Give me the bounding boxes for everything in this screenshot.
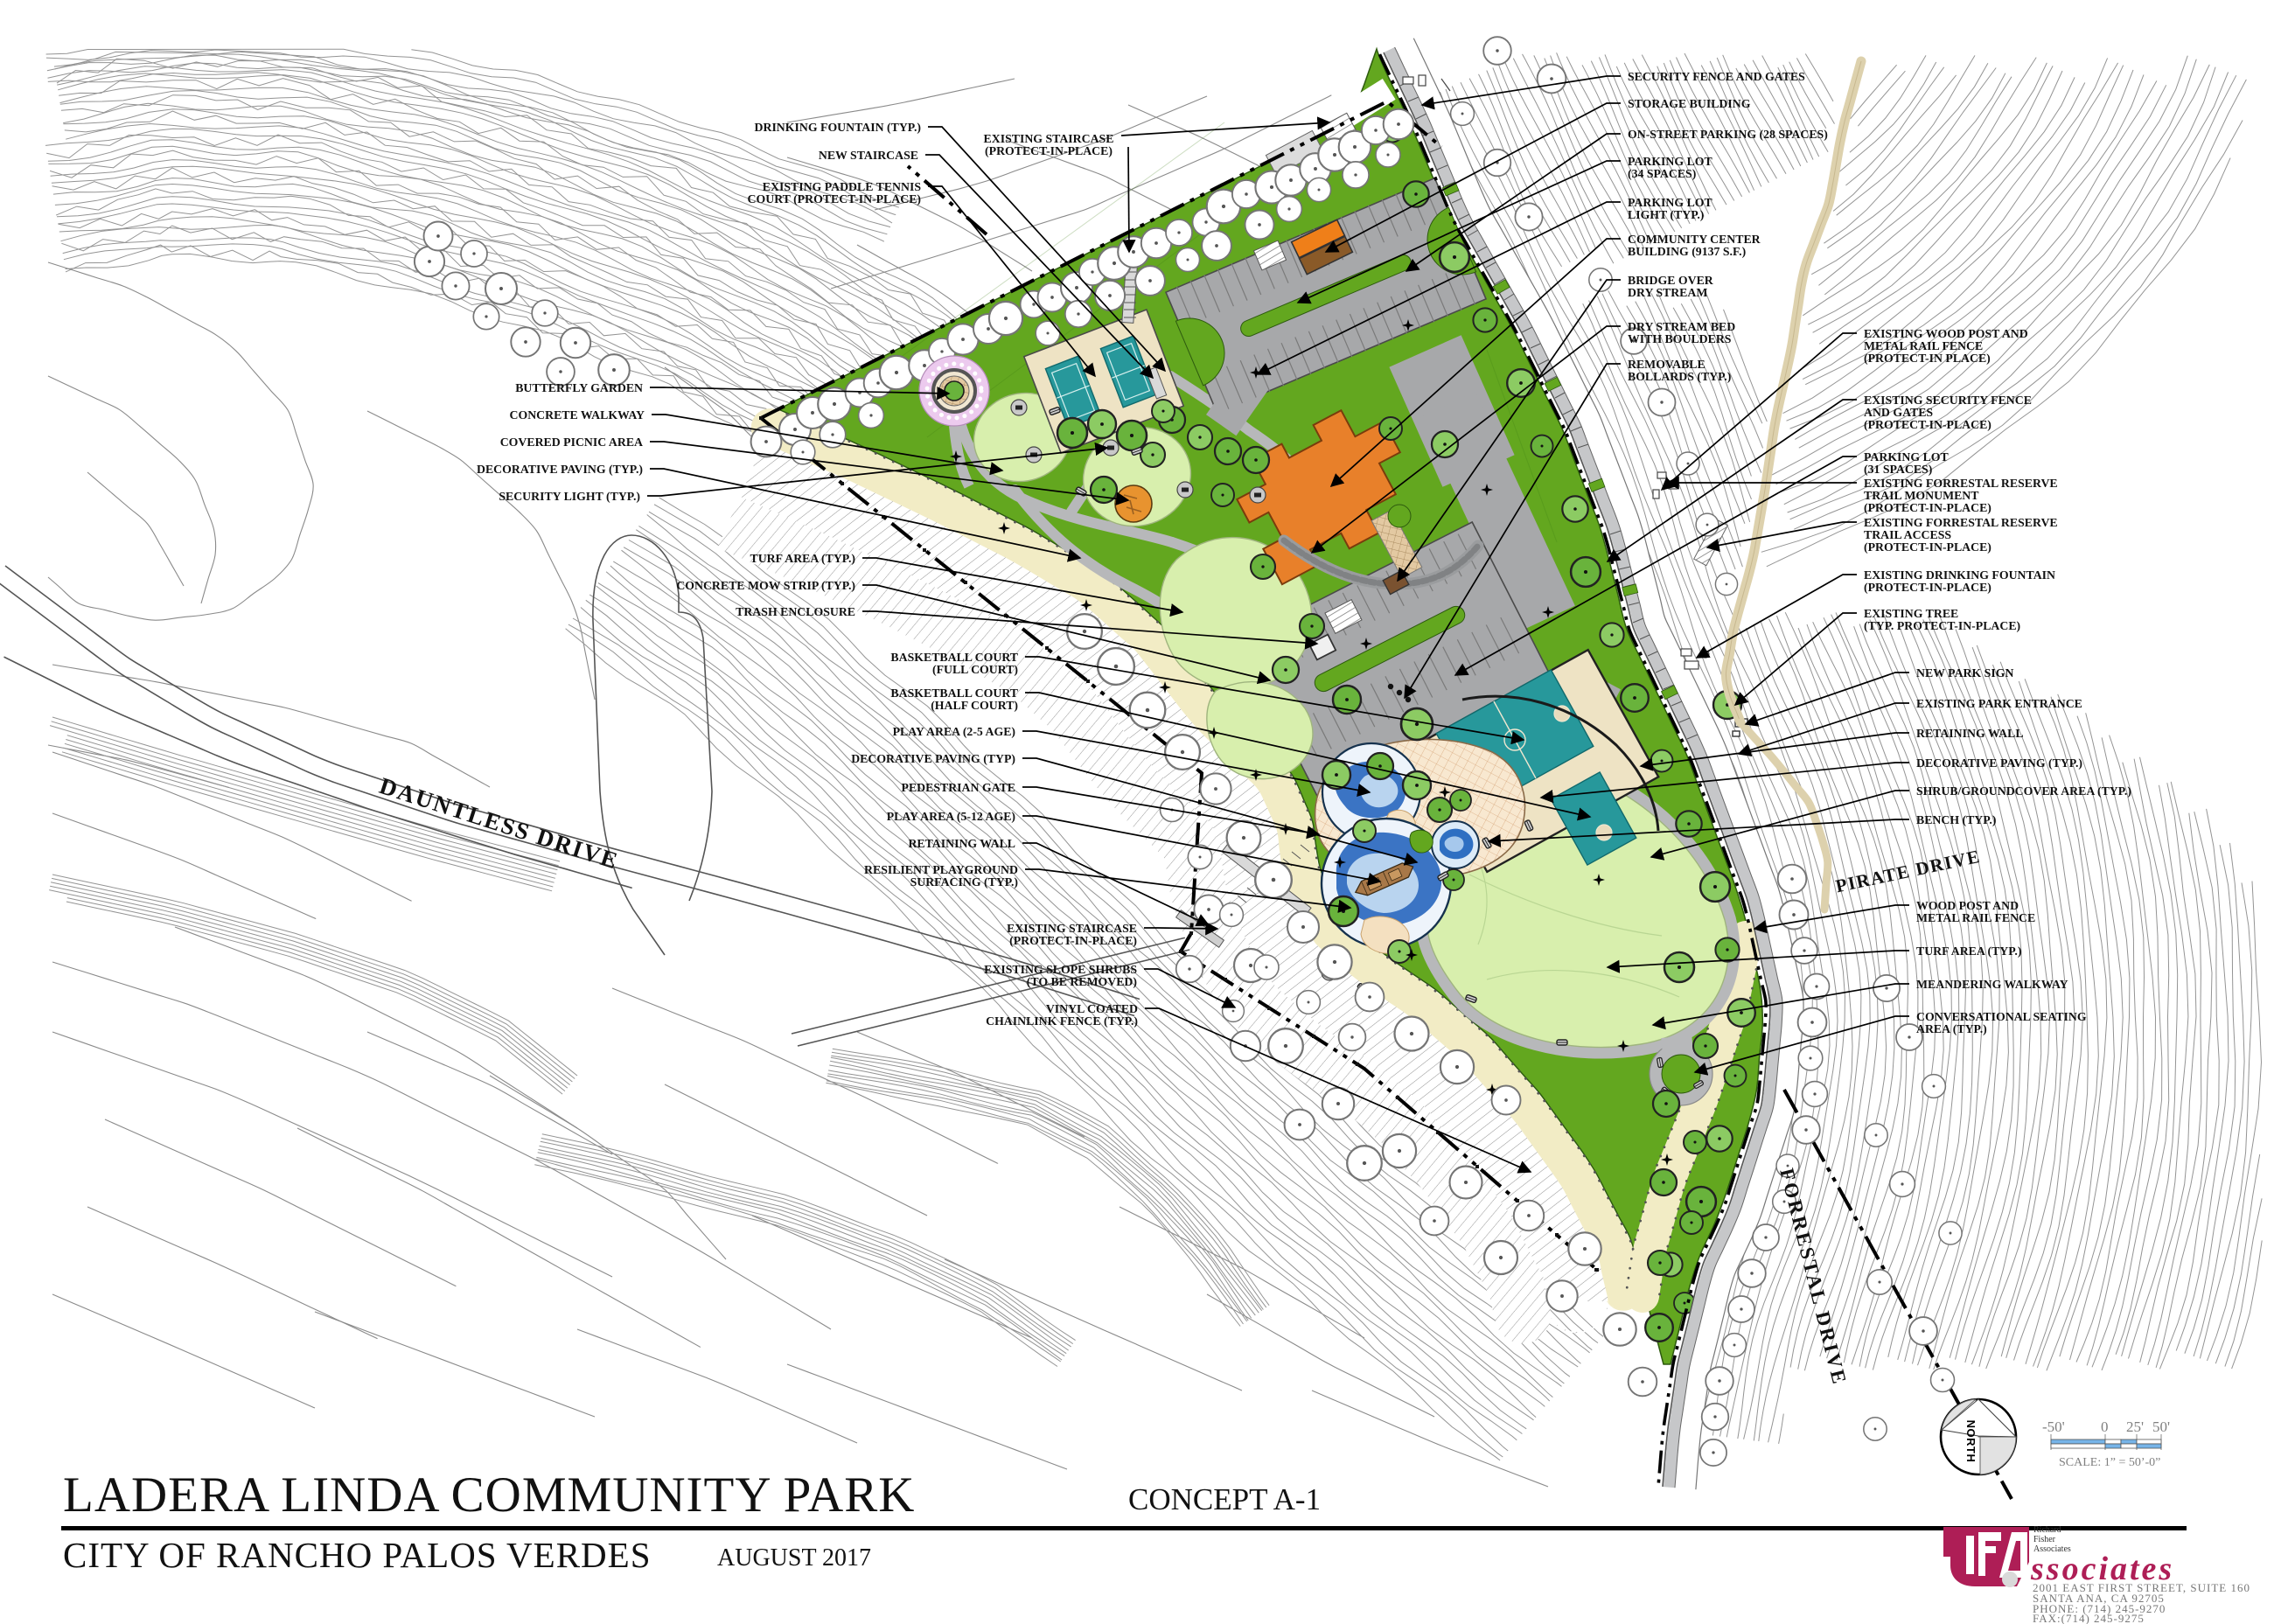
svg-text:(TYP. PROTECT-IN-PLACE): (TYP. PROTECT-IN-PLACE) <box>1864 619 2020 633</box>
svg-text:EXISTING PARK ENTRANCE: EXISTING PARK ENTRANCE <box>1916 697 2082 710</box>
svg-text:SURFACING (TYP.): SURFACING (TYP.) <box>910 875 1018 889</box>
svg-text:DRY STREAM BED: DRY STREAM BED <box>1628 320 1735 333</box>
svg-text:PARKING LOT: PARKING LOT <box>1628 196 1712 209</box>
svg-text:DECORATIVE PAVING (TYP.): DECORATIVE PAVING (TYP.) <box>1916 756 2082 770</box>
svg-text:EXISTING DRINKING FOUNTAIN: EXISTING DRINKING FOUNTAIN <box>1864 568 2055 582</box>
svg-text:(PROTECT-IN-PLACE): (PROTECT-IN-PLACE) <box>1864 581 1991 595</box>
svg-text:EXISTING SECURITY FENCE: EXISTING SECURITY FENCE <box>1864 394 2032 407</box>
svg-text:Richard: Richard <box>2033 1525 2061 1535</box>
svg-text:BOLLARDS (TYP.): BOLLARDS (TYP.) <box>1628 370 1731 384</box>
svg-text:(PROTECT-IN-PLACE): (PROTECT-IN-PLACE) <box>1009 934 1137 948</box>
svg-text:DECORATIVE PAVING (TYP.): DECORATIVE PAVING (TYP.) <box>477 463 643 477</box>
svg-text:TURF AREA (TYP.): TURF AREA (TYP.) <box>1916 944 2021 958</box>
svg-text:BASKETBALL COURT: BASKETBALL COURT <box>890 687 1018 700</box>
svg-text:DRINKING FOUNTAIN (TYP.): DRINKING FOUNTAIN (TYP.) <box>755 121 921 135</box>
svg-text:PLAY AREA (2-5 AGE): PLAY AREA (2-5 AGE) <box>893 725 1015 739</box>
svg-text:VINYL COATED: VINYL COATED <box>1046 1002 1138 1015</box>
svg-text:PARKING LOT: PARKING LOT <box>1864 450 1949 464</box>
svg-text:EXISTING PADDLE TENNIS: EXISTING PADDLE TENNIS <box>763 180 922 193</box>
svg-text:COVERED PICNIC AREA: COVERED PICNIC AREA <box>500 436 643 449</box>
svg-text:BENCH (TYP.): BENCH (TYP.) <box>1916 813 1996 827</box>
svg-text:WOOD POST AND: WOOD POST AND <box>1916 899 2019 912</box>
svg-text:ON-STREET PARKING (28 SPACES): ON-STREET PARKING (28 SPACES) <box>1628 128 1828 142</box>
svg-text:EXISTING FORRESTAL RESERVE: EXISTING FORRESTAL RESERVE <box>1864 477 2058 490</box>
svg-text:(PROTECT-IN PLACE): (PROTECT-IN PLACE) <box>1864 352 1991 366</box>
svg-text:NEW STAIRCASE: NEW STAIRCASE <box>819 149 918 162</box>
svg-text:PARKING LOT: PARKING LOT <box>1628 155 1712 168</box>
svg-text:CONVERSATIONAL SEATING: CONVERSATIONAL SEATING <box>1916 1010 2087 1023</box>
svg-text:TRAIL ACCESS: TRAIL ACCESS <box>1864 528 1951 541</box>
svg-text:EXISTING STAIRCASE: EXISTING STAIRCASE <box>984 132 1114 145</box>
svg-text:METAL RAIL FENCE: METAL RAIL FENCE <box>1916 911 2035 924</box>
svg-text:AREA (TYP.): AREA (TYP.) <box>1916 1022 1987 1036</box>
svg-text:COURT (PROTECT-IN-PLACE): COURT (PROTECT-IN-PLACE) <box>748 192 921 206</box>
svg-text:EXISTING TREE: EXISTING TREE <box>1864 607 1958 620</box>
svg-text:EXISTING WOOD POST AND: EXISTING WOOD POST AND <box>1864 327 2028 340</box>
svg-text:NORTH: NORTH <box>1964 1420 1978 1463</box>
svg-text:AND GATES: AND GATES <box>1864 406 1933 419</box>
svg-text:RETAINING WALL: RETAINING WALL <box>1916 727 2024 740</box>
svg-text:(TO BE REMOVED): (TO BE REMOVED) <box>1027 975 1137 989</box>
svg-text:DRY STREAM: DRY STREAM <box>1628 286 1707 299</box>
svg-text:CITY OF RANCHO PALOS VERDES: CITY OF RANCHO PALOS VERDES <box>63 1535 652 1575</box>
svg-text:BUILDING (9137 S.F.): BUILDING (9137 S.F.) <box>1628 245 1746 259</box>
svg-text:REMOVABLE: REMOVABLE <box>1628 358 1705 371</box>
svg-text:CONCEPT A-1: CONCEPT A-1 <box>1128 1482 1321 1516</box>
svg-text:TRAIL MONUMENT: TRAIL MONUMENT <box>1864 489 1978 502</box>
svg-text:COMMUNITY CENTER: COMMUNITY CENTER <box>1628 233 1761 246</box>
svg-text:LADERA LINDA COMMUNITY PARK: LADERA LINDA COMMUNITY PARK <box>63 1467 915 1523</box>
svg-text:EXISTING STAIRCASE: EXISTING STAIRCASE <box>1007 922 1137 935</box>
svg-text:AUGUST 2017: AUGUST 2017 <box>717 1544 871 1572</box>
svg-text:BRIDGE OVER: BRIDGE OVER <box>1628 274 1714 287</box>
svg-text:SHRUB/GROUNDCOVER AREA (TYP.): SHRUB/GROUNDCOVER AREA (TYP.) <box>1916 784 2131 798</box>
svg-text:CONCRETE WALKWAY: CONCRETE WALKWAY <box>510 408 645 422</box>
svg-text:WITH BOULDERS: WITH BOULDERS <box>1628 332 1732 345</box>
svg-text:TRASH ENCLOSURE: TRASH ENCLOSURE <box>736 605 855 618</box>
svg-text:25': 25' <box>2126 1418 2144 1435</box>
svg-text:SECURITY LIGHT (TYP.): SECURITY LIGHT (TYP.) <box>499 490 640 504</box>
svg-text:RETAINING WALL: RETAINING WALL <box>908 837 1015 850</box>
svg-text:RESILIENT PLAYGROUND: RESILIENT PLAYGROUND <box>864 863 1018 876</box>
svg-text:NEW PARK SIGN: NEW PARK SIGN <box>1916 666 2013 680</box>
svg-text:CHAINLINK FENCE (TYP.): CHAINLINK FENCE (TYP.) <box>986 1014 1138 1028</box>
svg-text:CONCRETE MOW STRIP (TYP.): CONCRETE MOW STRIP (TYP.) <box>676 579 855 593</box>
svg-text:-50': -50' <box>2042 1418 2065 1435</box>
svg-text:(PROTECT-IN-PLACE): (PROTECT-IN-PLACE) <box>1864 418 1991 432</box>
svg-text:Fisher: Fisher <box>2033 1535 2056 1544</box>
svg-text:PLAY AREA (5-12 AGE): PLAY AREA (5-12 AGE) <box>887 810 1015 824</box>
svg-text:(FULL COURT): (FULL COURT) <box>932 663 1018 677</box>
svg-text:PEDESTRIAN GATE: PEDESTRIAN GATE <box>902 781 1015 794</box>
svg-text:EXISTING FORRESTAL RESERVE: EXISTING FORRESTAL RESERVE <box>1864 516 2058 529</box>
svg-text:(34 SPACES): (34 SPACES) <box>1628 167 1696 181</box>
svg-text:(PROTECT-IN-PLACE): (PROTECT-IN-PLACE) <box>1864 540 1991 554</box>
svg-text:DECORATIVE PAVING (TYP): DECORATIVE PAVING (TYP) <box>851 752 1015 766</box>
svg-text:METAL RAIL FENCE: METAL RAIL FENCE <box>1864 339 1983 352</box>
svg-text:BASKETBALL COURT: BASKETBALL COURT <box>890 651 1018 664</box>
svg-text:BUTTERFLY GARDEN: BUTTERFLY GARDEN <box>515 381 643 394</box>
svg-text:Associates: Associates <box>2033 1544 2071 1554</box>
svg-text:LIGHT (TYP.): LIGHT (TYP.) <box>1628 208 1704 222</box>
svg-text:TURF AREA (TYP.): TURF AREA (TYP.) <box>750 552 855 566</box>
svg-text:(HALF COURT): (HALF COURT) <box>931 699 1018 713</box>
svg-text:SECURITY FENCE AND GATES: SECURITY FENCE AND GATES <box>1628 70 1805 83</box>
svg-text:(31 SPACES): (31 SPACES) <box>1864 463 1932 477</box>
svg-text:(PROTECT-IN-PLACE): (PROTECT-IN-PLACE) <box>1864 501 1991 515</box>
svg-text:MEANDERING WALKWAY: MEANDERING WALKWAY <box>1916 978 2068 991</box>
svg-text:SCALE: 1” = 50’-0”: SCALE: 1” = 50’-0” <box>2059 1456 2160 1469</box>
svg-text:STORAGE BUILDING: STORAGE BUILDING <box>1628 97 1751 110</box>
svg-text:0: 0 <box>2101 1418 2109 1435</box>
svg-text:50': 50' <box>2152 1418 2170 1435</box>
svg-text:(PROTECT-IN-PLACE): (PROTECT-IN-PLACE) <box>985 144 1113 158</box>
svg-text:EXISTING SLOPE SHRUBS: EXISTING SLOPE SHRUBS <box>984 963 1137 976</box>
svg-text:FAX:(714) 245-9275: FAX:(714) 245-9275 <box>2033 1612 2145 1624</box>
